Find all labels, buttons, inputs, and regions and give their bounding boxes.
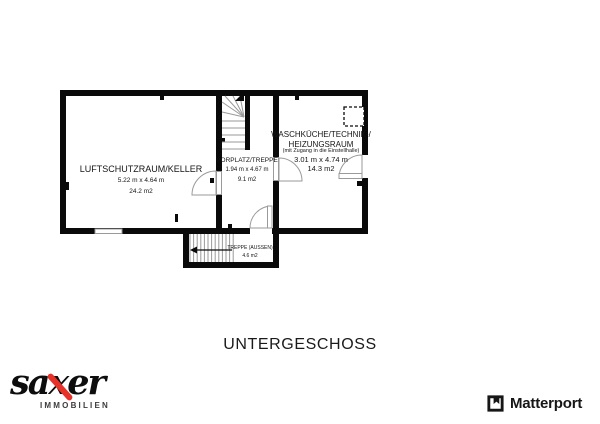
room-dims-vorplatz: 1.94 m x 4.67 m [225,167,268,174]
floor-title: UNTERGESCHOSS [223,336,377,354]
floorplan-drawing [0,0,600,424]
room-label-waschkueche-line1: WASCHKÜCHE/TECHNIK-/ [271,130,371,139]
room-area-keller: 24.2 m2 [129,188,153,195]
room-area-vorplatz: 9.1 m2 [238,177,256,184]
dashed-shaft [344,107,364,126]
room-dims-keller: 5.22 m x 4.64 m [118,177,165,184]
saxer-tagline: IMMOBILIEN [40,401,110,410]
interior-stairs [222,96,245,149]
door-leaf-vorplatz [268,206,273,228]
matterport-logo-icon [486,394,505,413]
door-leaf-right [339,174,362,179]
room-area-treppe-aussen: 4.6 m2 [242,254,257,260]
room-label-keller: LUFTSCHUTZRAUM/KELLER [80,164,203,174]
saxer-logo: saxer IMMOBILIEN [10,362,120,417]
matterport-logo: Matterport [486,394,582,413]
room-area-waschkueche: 14.3 m2 [307,165,334,174]
door-leaf-keller [217,172,222,195]
room-note-waschkueche: (mit Zugang in die Einstellhalle) [283,148,360,154]
window [95,229,122,234]
floorplan-page: LUFTSCHUTZRAUM/KELLER 5.22 m x 4.64 m 24… [0,0,600,424]
room-label-vorplatz: VORPLATZ/TREPPE [216,157,278,164]
matterport-label: Matterport [510,395,582,412]
room-label-treppe-aussen: TREPPE (AUSSEN) [227,246,272,252]
